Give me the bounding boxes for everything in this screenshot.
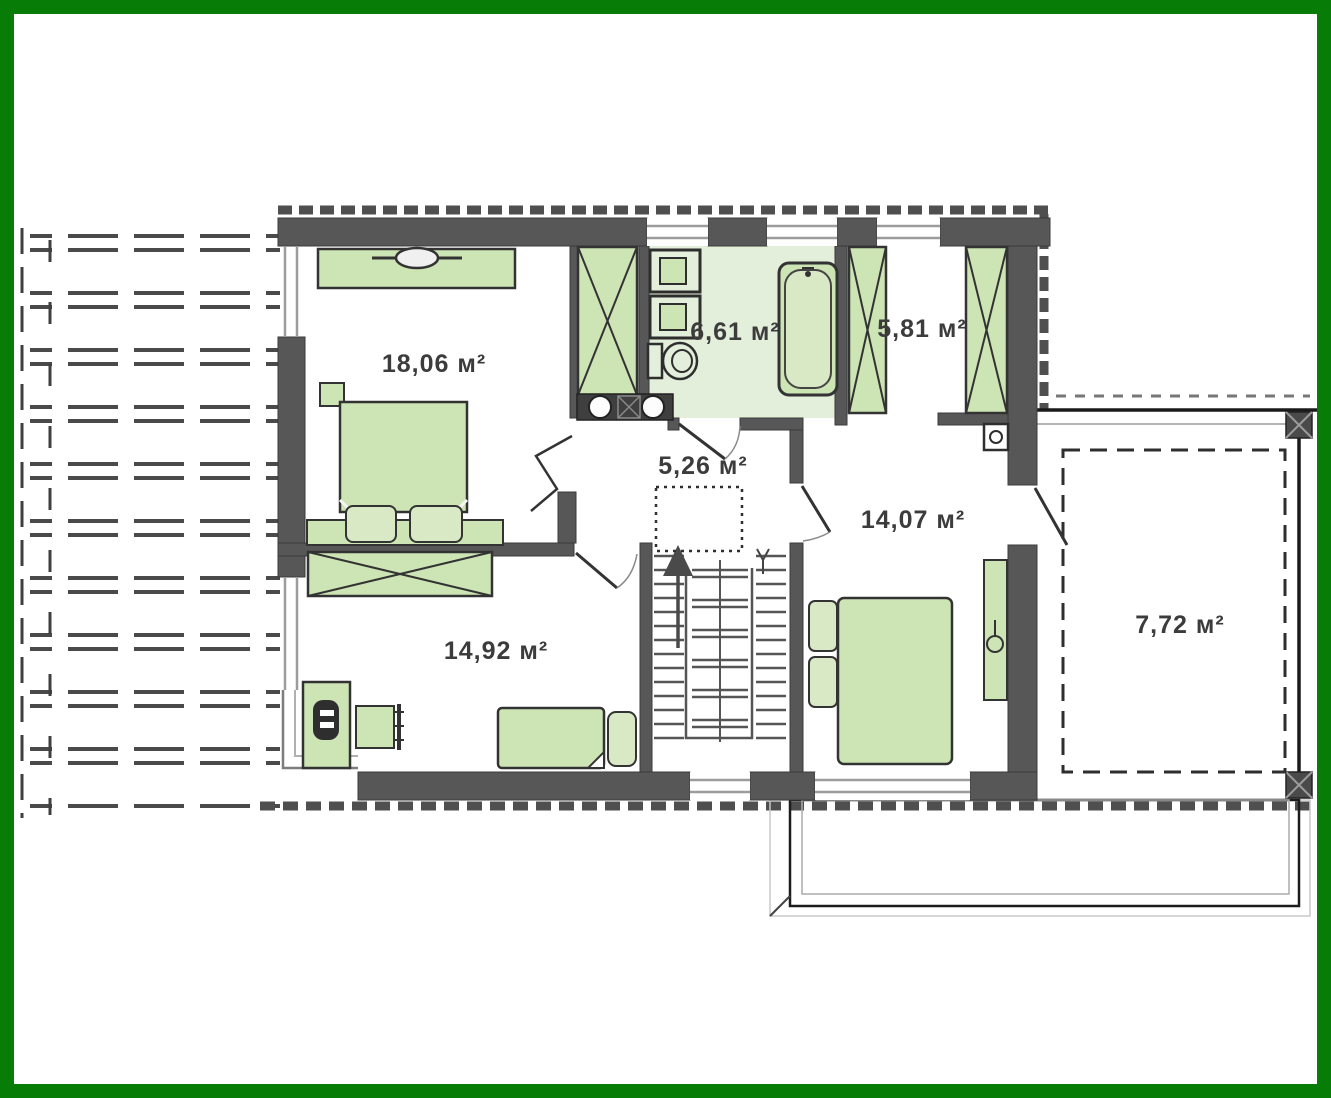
corner-sink xyxy=(984,424,1008,450)
window-top-2 xyxy=(767,218,837,246)
desk-equipment-icon xyxy=(313,700,339,740)
stair-treads-right xyxy=(756,556,786,738)
toilet xyxy=(648,343,697,379)
bathtub xyxy=(779,263,837,395)
bedroom-right-furniture xyxy=(809,560,1007,764)
pillow xyxy=(809,601,837,651)
desk xyxy=(303,682,350,768)
pillow xyxy=(809,657,837,707)
double-bed xyxy=(307,402,503,545)
room-label-bathroom: 6,61 м² xyxy=(690,318,779,346)
room-label-bedroom-right: 14,07 м² xyxy=(861,506,965,534)
door-bedroom-bottom xyxy=(576,553,637,588)
wardrobe-x xyxy=(578,247,637,395)
bed-blanket xyxy=(838,598,952,764)
wardrobe-x xyxy=(966,247,1007,413)
mirror-icon xyxy=(396,248,438,268)
stair-up-arrow-icon xyxy=(663,545,693,648)
chair xyxy=(356,704,404,750)
vanity-two-sinks xyxy=(577,394,673,420)
bed-blanket xyxy=(340,402,467,512)
pillow xyxy=(608,712,636,766)
room-label-balcony: 7,72 м² xyxy=(1135,611,1224,639)
room-label-hall: 5,26 м² xyxy=(658,452,747,480)
headboard xyxy=(307,520,503,545)
tall-cabinet xyxy=(984,560,1007,700)
balcony-post xyxy=(1286,412,1312,438)
roof-dashed-outline xyxy=(22,205,280,818)
pillow xyxy=(410,506,462,542)
window-left-upper xyxy=(285,246,297,337)
sink-icon xyxy=(642,396,664,418)
window-bottom-1 xyxy=(690,772,750,800)
dresser-with-mirror xyxy=(318,248,515,288)
stairwell-opening-dotted xyxy=(656,487,742,551)
balcony-post xyxy=(1286,772,1312,798)
terrace-outline xyxy=(770,800,1310,916)
window-top-1 xyxy=(647,218,708,246)
window-top-3 xyxy=(877,218,940,246)
floor-plan-image: 18,06 м² 6,61 м² 5,81 м² 5,26 м² 14,07 м… xyxy=(0,0,1331,1098)
sink-icon xyxy=(589,396,611,418)
window-left-lower xyxy=(285,577,297,690)
balcony-structure xyxy=(1037,396,1322,800)
faucet-icon xyxy=(805,271,811,277)
dresser-x xyxy=(308,552,492,596)
window-bottom-2 xyxy=(815,772,970,800)
room-label-bedroom-large: 18,06 м² xyxy=(382,350,486,378)
pillow xyxy=(346,506,396,542)
room-label-wardrobe: 5,81 м² xyxy=(877,315,966,343)
room-label-bedroom-bottom: 14,92 м² xyxy=(444,637,548,665)
floor-plan-svg: 18,06 м² 6,61 м² 5,81 м² 5,26 м² 14,07 м… xyxy=(0,0,1331,1098)
single-bed xyxy=(498,708,636,768)
door-bedroom-right xyxy=(802,486,830,541)
stairs xyxy=(654,487,786,742)
